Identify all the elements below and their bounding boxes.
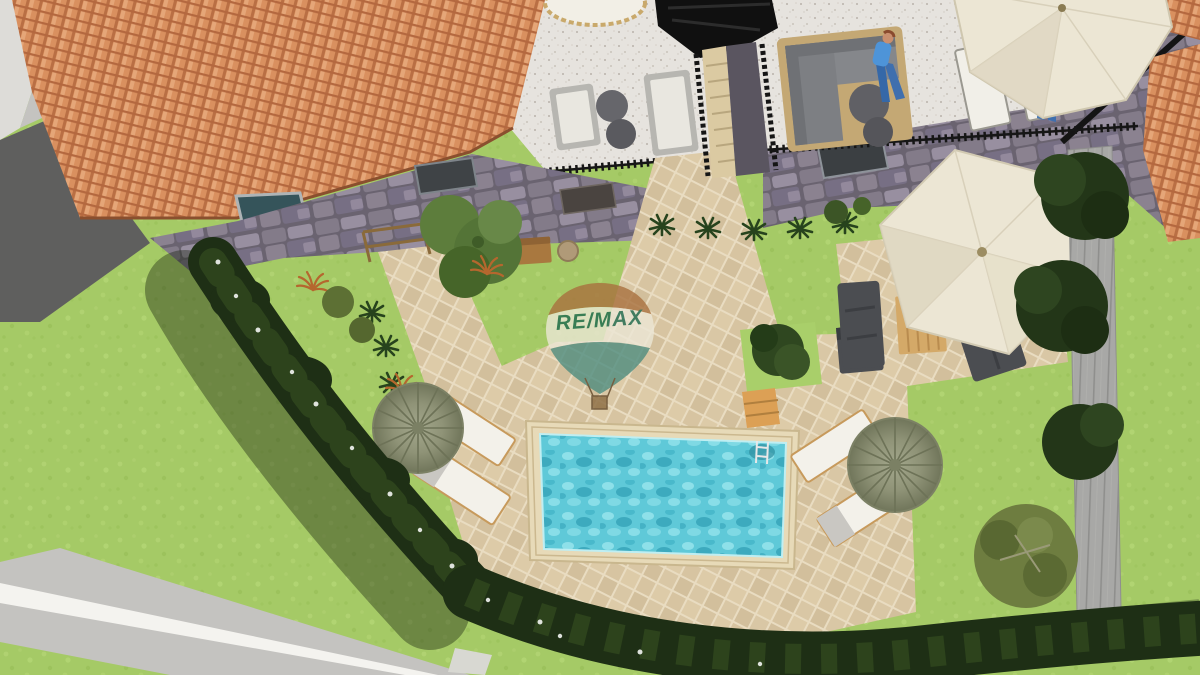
coffee-table [596, 90, 628, 122]
coffee-table [863, 117, 893, 147]
olive-tree [974, 504, 1078, 608]
bush [322, 286, 354, 318]
thatch-parasol [848, 418, 942, 512]
umbrella-pole [977, 247, 987, 257]
bush [349, 317, 375, 343]
umbrella-pole [1058, 4, 1066, 12]
balloon-basket [592, 396, 607, 409]
rendered-garden-plan: RE/MAX [0, 0, 1200, 675]
garden-sofa [837, 281, 885, 370]
outdoor-sofa-left [549, 83, 601, 151]
stone-ball [558, 241, 578, 261]
wooden-steps [742, 388, 780, 428]
bush [853, 197, 871, 215]
scene-canvas: RE/MAX [0, 0, 1200, 675]
swimming-pool [526, 421, 799, 569]
bush [824, 200, 848, 224]
coffee-table [606, 119, 636, 149]
